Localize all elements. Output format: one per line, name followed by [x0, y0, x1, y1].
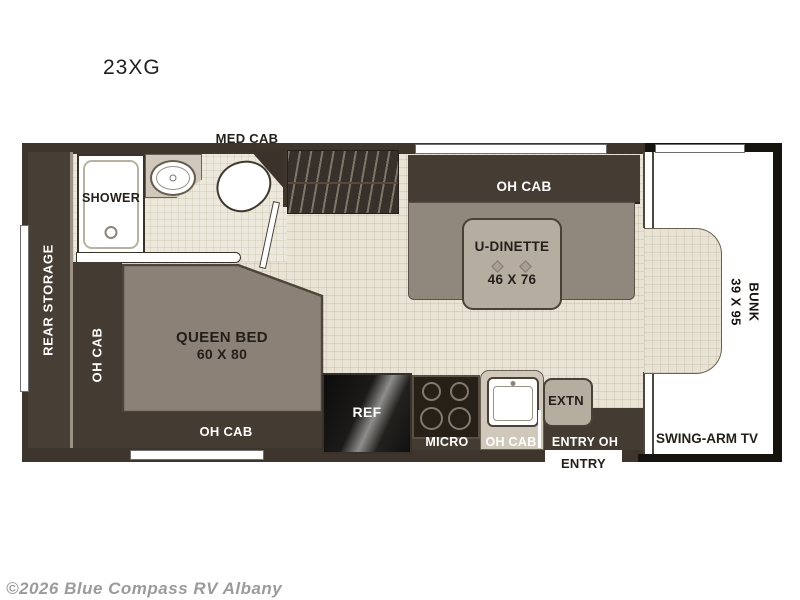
ref-label: REF: [324, 405, 410, 420]
cup-holder: [519, 260, 532, 273]
u-dinette-label: U-DINETTE: [464, 240, 560, 255]
rear-window: [20, 225, 29, 392]
queen-bed-label: QUEEN BED: [142, 330, 302, 347]
burner: [422, 382, 441, 401]
entry-oh-label: ENTRY OH: [544, 436, 626, 450]
burner: [420, 407, 443, 430]
cabinet-divider: [538, 410, 541, 448]
cab-bottom-wall: [638, 454, 782, 462]
watermark: ©2026 Blue Compass RV Albany: [6, 579, 282, 599]
oh-cab-bed-side-label: OH CAB: [90, 328, 105, 383]
cab-divider-top: [643, 152, 654, 228]
burner: [448, 407, 471, 430]
bath-sink: [150, 160, 196, 196]
swing-arm-tv-label: SWING-ARM TV: [648, 432, 766, 447]
queen-bed-size-label: 60 X 80: [142, 347, 302, 362]
burner: [450, 382, 469, 401]
cab-walkway: [644, 228, 722, 374]
oh-cab-bed-foot-label: OH CAB: [122, 425, 330, 439]
bunk-label-line2: 39 X 95: [727, 278, 745, 326]
cab-window: [655, 144, 745, 153]
dinette-window: [415, 144, 607, 154]
bedroom-window: [130, 450, 264, 460]
page-title: 23XG: [103, 56, 161, 80]
bunk-label-line1: BUNK: [745, 278, 763, 326]
u-dinette-size-label: 46 X 76: [464, 273, 560, 288]
kitchen-sink: [487, 377, 539, 427]
refrigerator: REF: [322, 373, 412, 454]
oh-cab-kitchen-label: OH CAB: [478, 436, 544, 450]
rear-storage-label: REAR STORAGE: [41, 244, 56, 356]
micro-label: MICRO: [412, 436, 482, 450]
cup-holder: [491, 260, 504, 273]
u-dinette-table: U-DINETTE 46 X 76: [462, 218, 562, 310]
sink-basin: [493, 386, 533, 421]
entry-label: ENTRY: [545, 457, 622, 471]
shower-label: SHOWER: [79, 192, 143, 206]
bunk-label: BUNK 39 X 95: [727, 278, 762, 326]
extn-label: EXTN: [540, 394, 592, 408]
steps-divider: [288, 182, 398, 184]
steps-hatch: [287, 150, 399, 214]
stove: [412, 375, 480, 439]
shower-drain: [105, 226, 118, 239]
shower: SHOWER: [77, 154, 145, 255]
bath-sink-drain: [170, 175, 177, 182]
cab-right-wall: [773, 143, 782, 462]
oh-cab-dinette-label: OH CAB: [408, 180, 640, 195]
floorplan-page: { "page": { "title": "23XG", "watermark"…: [0, 0, 800, 600]
